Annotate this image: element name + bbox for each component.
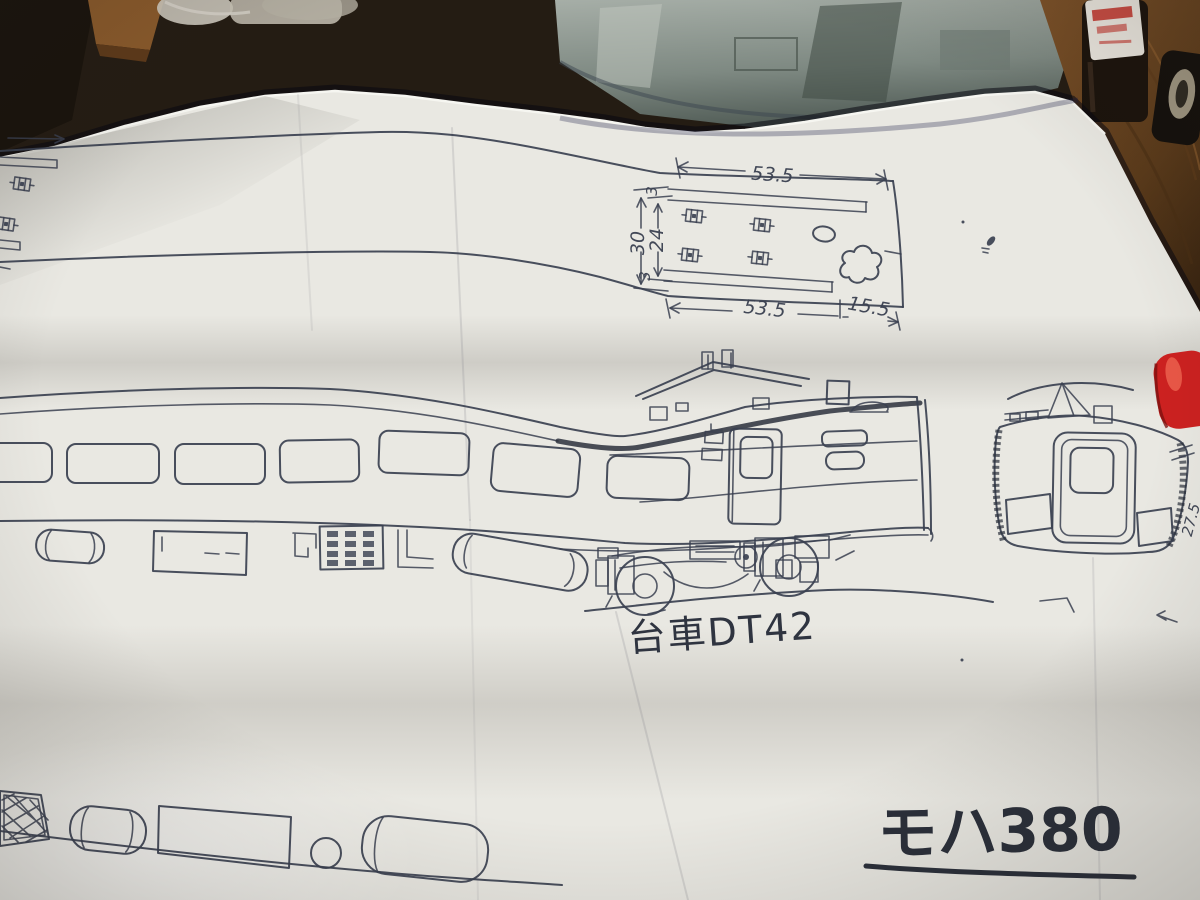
scene-canvas: 53.5 30 24 3 3 53.5 bbox=[0, 0, 1200, 900]
photo-train-blueprint-on-desk: 53.5 30 24 3 3 53.5 bbox=[0, 0, 1200, 900]
photo-vignette bbox=[0, 0, 1200, 900]
